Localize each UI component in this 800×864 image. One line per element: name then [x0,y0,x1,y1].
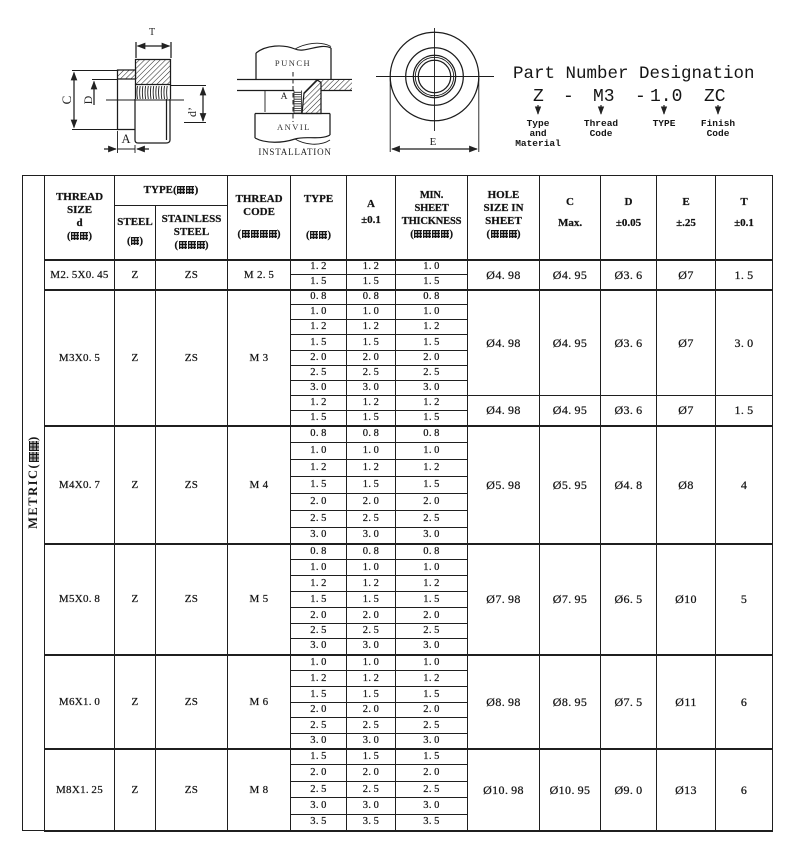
svg-text:A: A [281,92,288,102]
svg-text:Code: Code [590,128,613,139]
svg-text:Material: Material [515,138,561,149]
svg-text:TYPE: TYPE [653,118,676,129]
svg-text:d’: d’ [185,107,199,117]
svg-text:PUNCH: PUNCH [275,58,311,68]
svg-text:C: C [59,96,74,105]
svg-text:D: D [81,95,95,104]
svg-text:Code: Code [707,128,730,139]
svg-text:Part Number Designation: Part Number Designation [513,64,755,84]
svg-text:-: - [635,87,646,107]
svg-text:INSTALLATION: INSTALLATION [258,147,331,157]
svg-text:ANVIL: ANVIL [277,122,311,132]
svg-text:M3: M3 [593,87,615,107]
svg-text:-: - [563,87,574,107]
svg-text:1.0: 1.0 [650,87,682,107]
svg-text:A: A [121,132,130,146]
svg-text:ZC: ZC [704,87,726,107]
svg-text:E: E [430,136,437,148]
svg-text:T: T [149,27,155,38]
svg-text:Z: Z [533,87,544,107]
